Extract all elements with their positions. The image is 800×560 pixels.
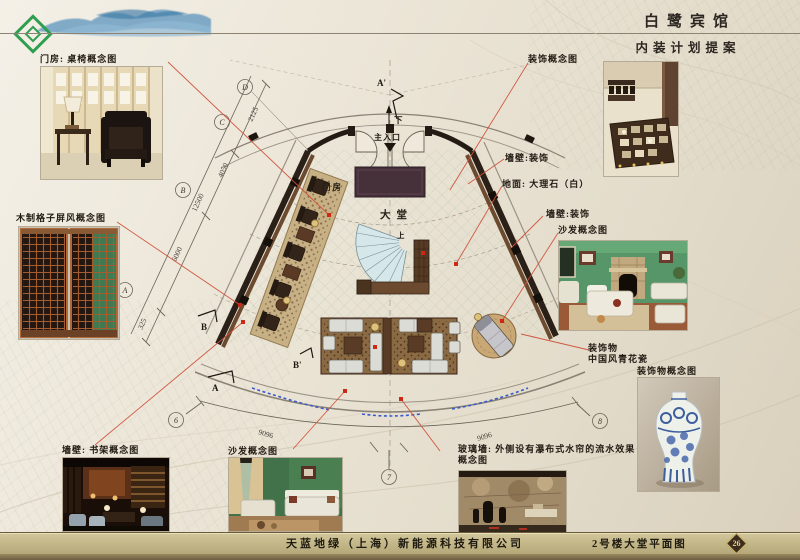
left-wall [206,140,313,347]
svg-text:B: B [201,322,207,332]
photo-bookshelf-lounge [62,457,170,532]
svg-text:下: 下 [394,115,403,125]
callout-wall-decor-1: 墙壁:装饰 [505,151,549,164]
callout-glass-wall-line2: 概念图 [458,453,488,466]
photo-water-wall [458,470,567,534]
photo-sofa-room-right [558,240,688,331]
svg-text:B: B [181,186,186,195]
svg-text:上: 上 [397,230,405,240]
floor-tile-grid [200,140,580,350]
photo-sofa-room-bottom [228,457,343,532]
svg-text:6000: 6000 [170,245,185,263]
svg-text:12500: 12500 [190,192,206,213]
svg-text:325: 325 [136,317,149,331]
callout-floor-marble: 地面: 大理石（白） [502,177,589,190]
photo-porcelain-vase [637,377,720,492]
callout-sofa-bottom: 沙发概念图 [228,444,278,457]
reception-counter [357,240,429,294]
svg-text:9096: 9096 [257,427,274,440]
callout-decor-top: 装饰概念图 [528,52,578,65]
svg-text:8: 8 [598,417,602,426]
chaise-lounge [472,314,516,359]
callout-sofa-right: 沙发概念图 [558,223,608,236]
entrance-doors [308,124,472,173]
mountain-watercolor-graphic [36,1,211,42]
svg-text:2125: 2125 [246,105,261,123]
company-name: 天蓝地绿（上海）新能源科技有限公司 [240,535,570,551]
svg-text:B': B' [293,360,302,370]
page-title: 白鹭宾馆 [600,10,780,31]
entrance-labels: 下 主入口 上 [374,105,405,240]
callout-vase: 装饰物概念图 [637,364,697,377]
staircase [356,224,417,293]
page-number: 26 [730,539,743,548]
presentation-board: 白鹭宾馆 内装计划提案 [0,0,800,560]
room-label-lobby: 大堂 [380,208,413,221]
svg-text:A: A [212,383,219,393]
callout-menfang: 门房: 桌椅概念图 [40,52,117,65]
entrance-mat [355,167,425,197]
svg-text:6: 6 [174,416,178,425]
svg-text:9096: 9096 [476,430,493,443]
footer-strip [0,554,800,560]
lobby-sofa-cluster [321,318,460,374]
right-wall [467,142,568,339]
svg-text:A: A [122,286,128,295]
svg-text:主入口: 主入口 [374,132,401,142]
photo-menfang-chair [40,66,163,180]
drawing-title: 2号楼大堂平面图 [592,536,687,551]
svg-text:4050: 4050 [216,161,231,179]
callout-lattice: 木制格子屏风概念图 [16,211,106,224]
svg-text:D: D [241,83,248,92]
photo-lattice-screen [18,226,120,340]
header-divider [0,33,800,34]
room-label-menfang: 门房 [322,182,343,192]
page-subtitle: 内装计划提案 [588,37,788,56]
callout-wall-decor-2: 墙壁:装饰 [546,207,590,220]
photo-decor-lobby [603,61,679,177]
section-markers: A' B A B' [198,78,403,393]
leader-lines [95,62,589,451]
leader-dots [238,213,504,401]
glass-wall-arc [195,364,585,416]
construction-lines [214,60,566,472]
svg-text:7: 7 [387,473,392,482]
callout-bookshelf: 墙壁: 书架概念图 [62,443,139,456]
svg-text:A': A' [377,78,386,88]
porter-furniture [250,168,348,347]
svg-text:C: C [219,118,225,127]
